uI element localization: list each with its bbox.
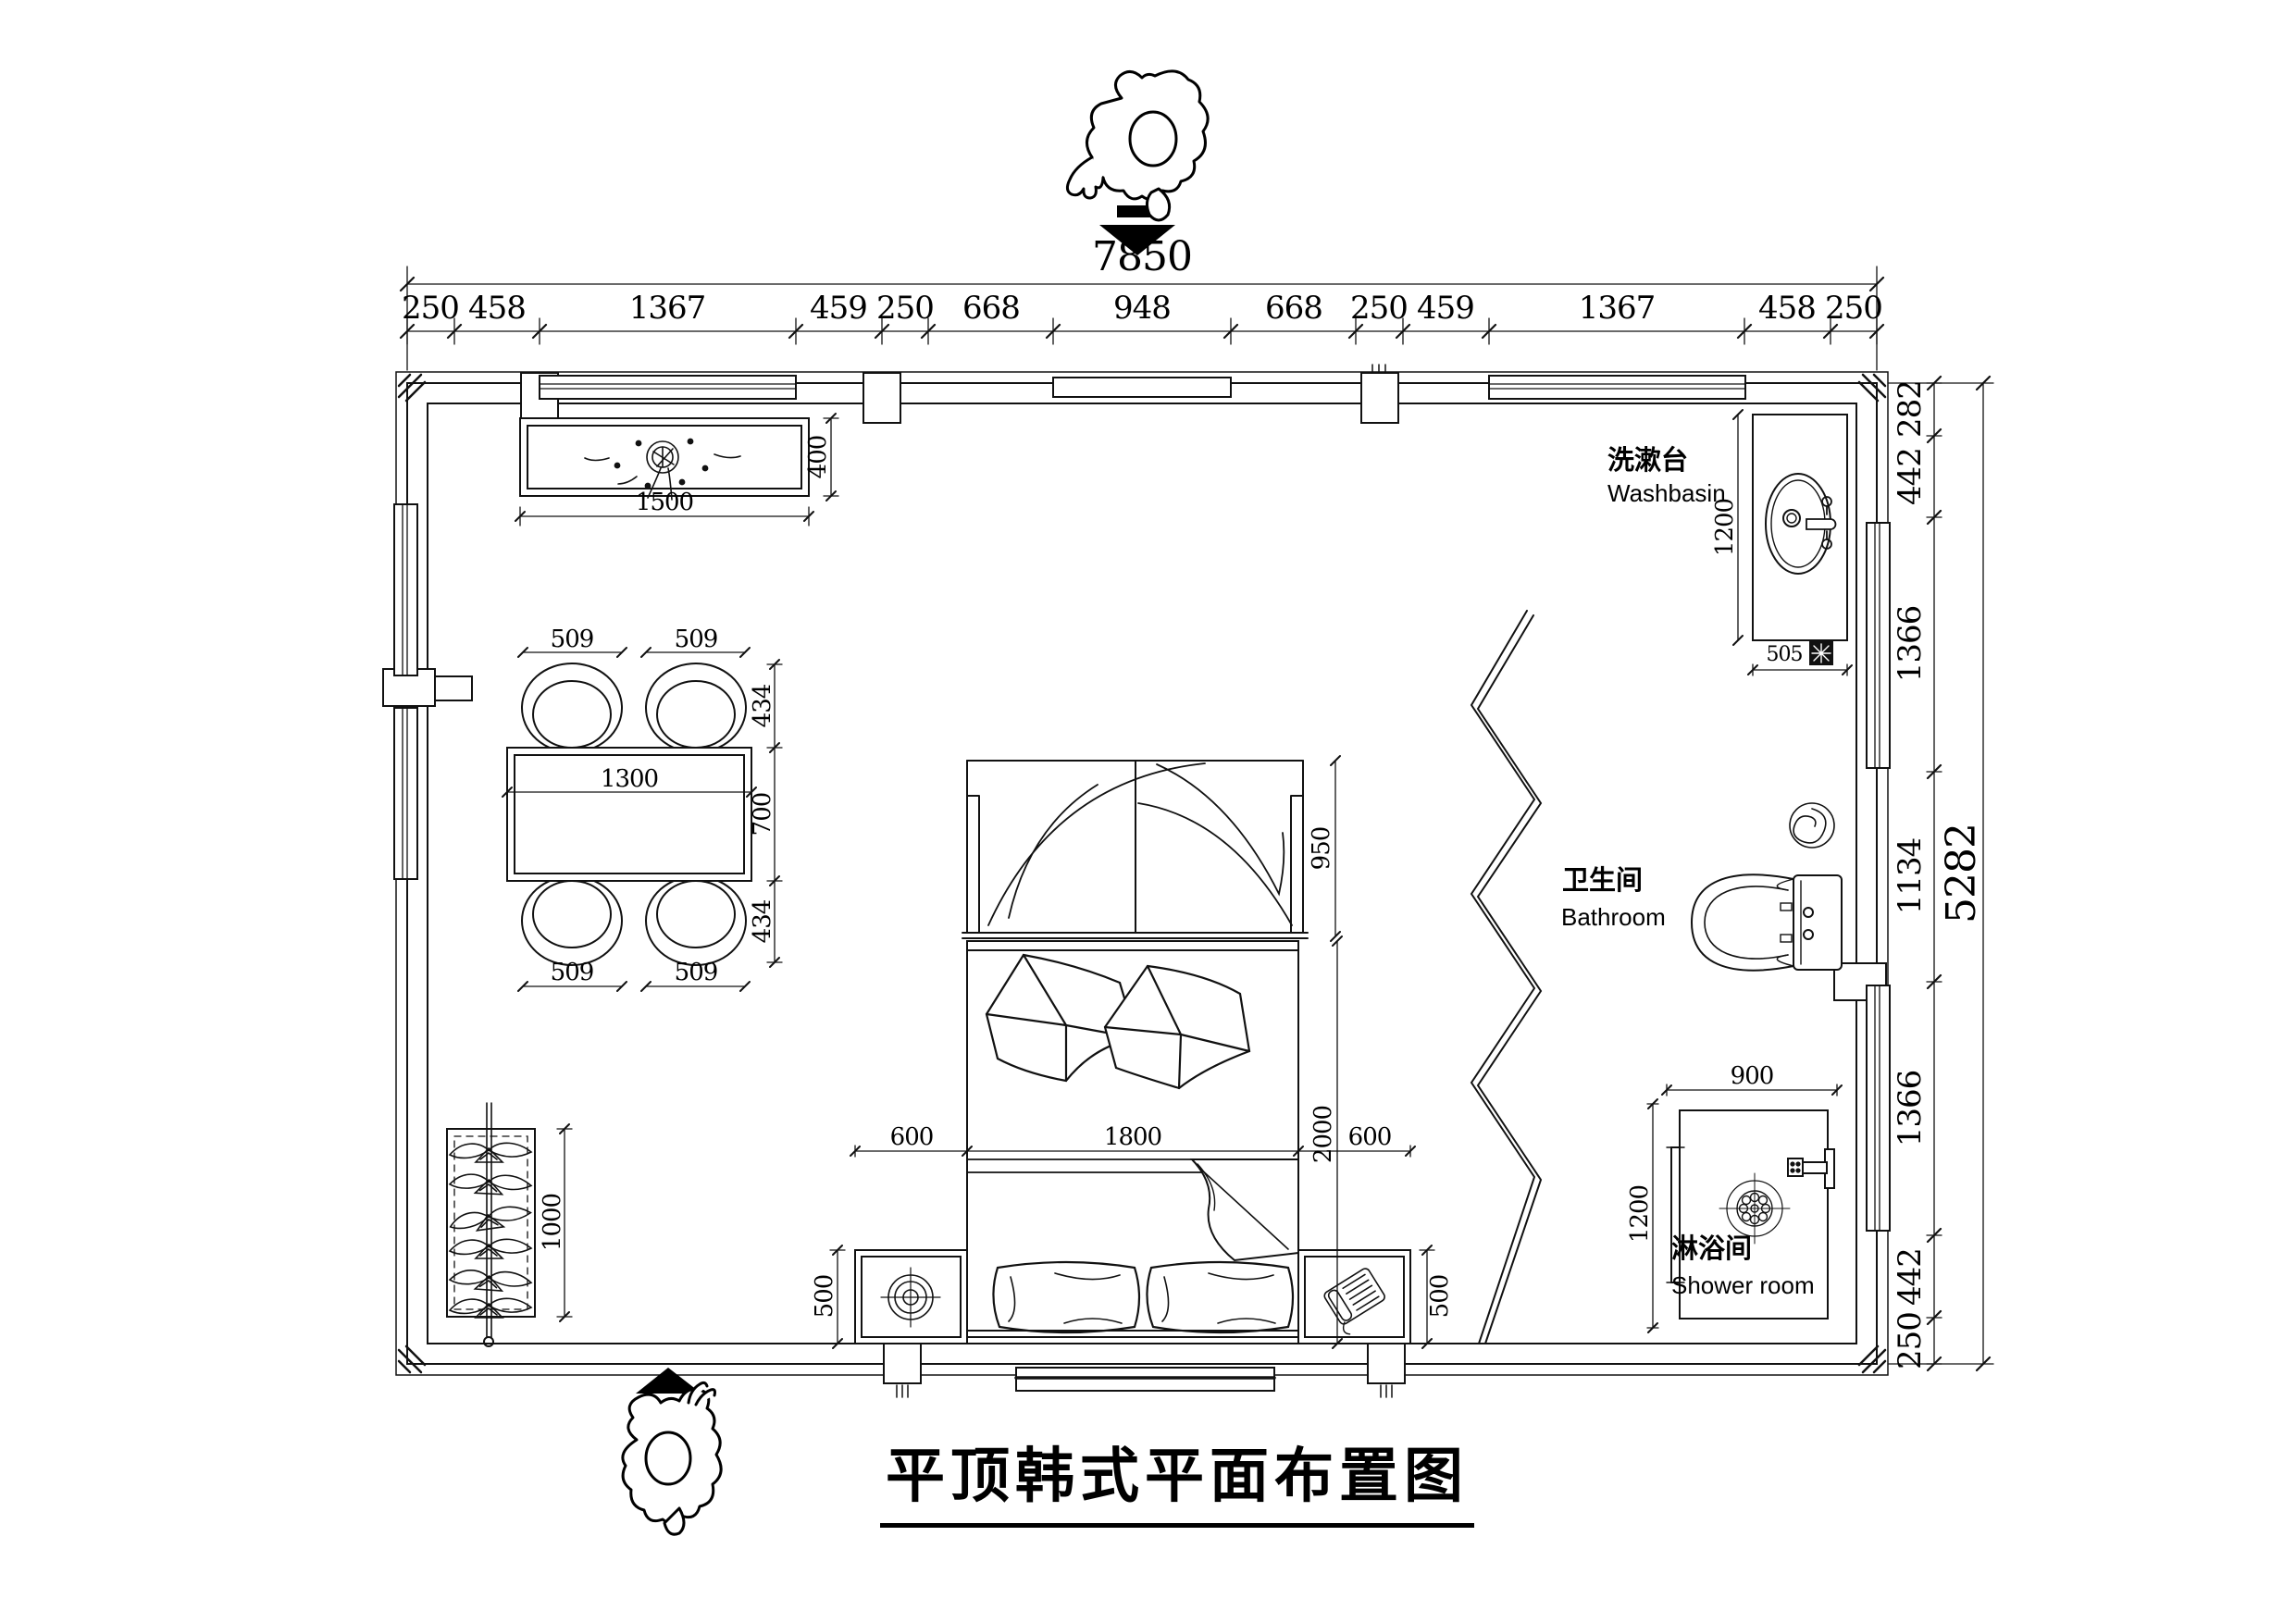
dim-right-seg-4: 1366 [1894,1071,1926,1147]
person-top-icon [1067,71,1208,220]
label-washbasin-en: Washbasin [1607,481,1726,505]
dim-table-width: 1300 [601,767,658,791]
label-bathroom-zh: 卫生间 [1562,868,1643,895]
floorplan-page: 7850 250 458 1367 459 250 668 948 668 25… [0,0,2296,1623]
dim-right-seg-0: 282 [1894,380,1926,438]
toilet [1692,803,1842,971]
dim-chair-depth-top: 434 [751,685,775,728]
person-bottom-icon [623,1382,721,1534]
dim-bed-gap-right: 600 [1348,1125,1392,1149]
label-shower-en: Shower room [1671,1273,1815,1297]
dim-top-seg-9: 459 [1417,292,1474,324]
dim-top-seg-2: 1367 [629,292,706,324]
dim-shower-depth: 1200 [1628,1185,1652,1243]
drawing-title: 平顶韩式平面布置图 [880,1429,1474,1528]
dim-top-total: 7850 [1092,237,1192,278]
dim-right-total: 5282 [1942,824,1982,923]
nightstand-right [1298,1250,1410,1344]
label-bathroom-en: Bathroom [1561,905,1666,929]
folding-partition [1471,611,1541,1344]
dim-right-seg-3: 1134 [1894,838,1926,915]
dining-set [503,648,782,991]
dim-top-seg-10: 1367 [1579,292,1656,324]
label-washbasin-zh: 洗漱台 [1607,448,1688,475]
dim-top-seg-5: 668 [962,292,1020,324]
toilet-paper-icon [1790,803,1834,848]
dim-bed-head: 950 [1309,827,1334,871]
entry-door-panel [1053,378,1231,397]
floor-drain-icon [1810,642,1832,664]
dim-chair-tr: 509 [675,627,718,651]
dim-bed-width: 1800 [1104,1125,1161,1149]
dim-nightstand-right: 500 [1428,1275,1452,1319]
dim-right-seg-1: 442 [1894,448,1926,505]
dim-chair-depth-bottom: 434 [751,900,775,944]
dim-right-seg-6: 250 [1894,1312,1926,1369]
dim-tv-depth: 400 [806,436,830,479]
dim-basin-length: 1200 [1713,499,1737,556]
dim-top-seg-0: 250 [402,292,459,324]
dim-nightstand-left: 500 [813,1275,837,1319]
dim-top-seg-1: 458 [468,292,526,324]
shower-drain-icon [1719,1173,1790,1244]
shower-head-icon [1788,1149,1834,1188]
dim-top-seg-7: 668 [1265,292,1322,324]
dim-right-seg-2: 1366 [1894,606,1926,683]
dim-right-seg-5: 442 [1894,1248,1926,1306]
dim-chair-bl: 509 [551,960,594,985]
dim-bed-gap-left: 600 [890,1125,934,1149]
dim-top-seg-6: 948 [1113,292,1171,324]
dim-wardrobe-height: 1000 [540,1194,565,1251]
dim-top-seg-4: 250 [876,292,934,324]
dim-shower-width: 900 [1731,1064,1774,1088]
bed-canopy [962,761,1308,938]
dim-chair-tl: 509 [551,627,594,651]
dim-chair-br: 509 [675,960,718,985]
dim-tv-width: 1500 [636,490,693,514]
dim-basin-width: 505 [1767,645,1803,665]
dim-top-seg-3: 459 [810,292,867,324]
dim-bed-length: 2000 [1311,1106,1335,1163]
dim-top-seg-8: 250 [1350,292,1408,324]
washbasin-counter [1733,410,1852,675]
dim-top-seg-12: 250 [1825,292,1882,324]
dim-top-seg-11: 458 [1758,292,1816,324]
label-shower-zh: 淋浴间 [1671,1236,1752,1263]
dim-table-depth: 700 [751,793,775,836]
nightstand-left [855,1250,967,1344]
